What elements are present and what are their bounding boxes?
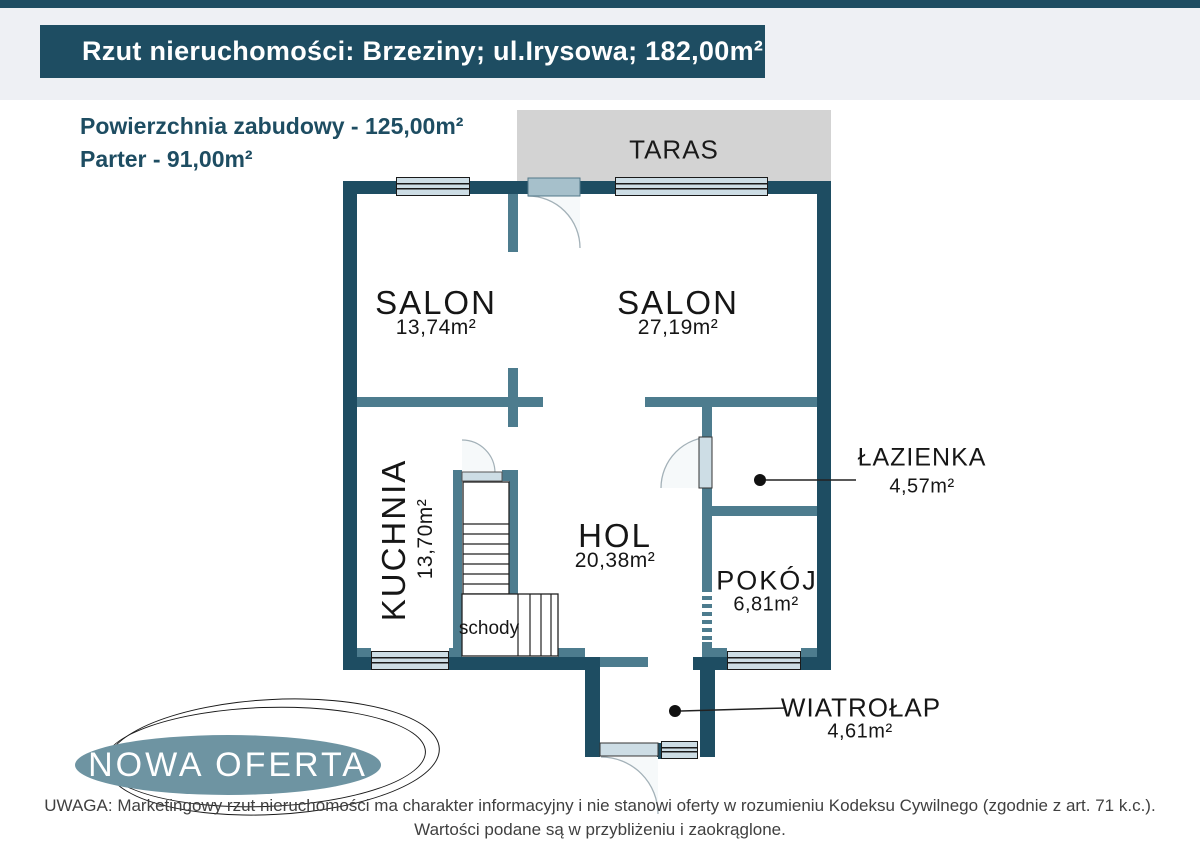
wall-pokoj-opening-dashed: [702, 588, 712, 642]
title-banner: Rzut nieruchomości: Brzeziny; ul.Irysowa…: [40, 25, 765, 78]
wall-lining-5: [801, 648, 817, 657]
floor-area-line: Parter - 91,00m²: [80, 143, 463, 176]
room-label-lazienka: ŁAZIENKA: [858, 444, 987, 473]
wall-vestibule-stub: [600, 657, 648, 667]
wall-vestibule-left: [585, 657, 600, 757]
wall-lining-3: [558, 648, 585, 657]
page-title: Rzut nieruchomości: Brzeziny; ul.Irysowa…: [82, 36, 763, 67]
terrace-label: TARAS: [629, 135, 719, 166]
room-label-wiatrolap: WIATROŁAP: [781, 693, 941, 724]
wall-bath-top: [645, 397, 817, 407]
wall-lining-2: [449, 648, 453, 657]
wall-left: [343, 181, 357, 670]
stairs-label: schody: [459, 618, 519, 640]
agency-logo-text: NOWA OFERTA: [88, 746, 368, 785]
floor-plan-page: Rzut nieruchomości: Brzeziny; ul.Irysowa…: [0, 0, 1200, 860]
disclaimer-line-1: UWAGA: Marketingowy rzut nieruchomości m…: [0, 794, 1200, 818]
wall-vestibule-right: [700, 657, 715, 757]
leader-vestibule: [669, 705, 786, 717]
top-accent-bar: [0, 0, 1200, 8]
room-area-salon1: 13,74m²: [396, 316, 477, 340]
leader-bathroom: [754, 474, 856, 486]
agency-logo: NOWA OFERTA: [75, 735, 381, 795]
window-pokoj: [727, 651, 801, 670]
disclaimer-line-2: Wartości podane są w przybliżeniu i zaok…: [0, 818, 1200, 842]
wall-cross-stub: [508, 368, 518, 427]
room-area-pokoj: 6,81m²: [733, 594, 798, 617]
legal-disclaimer: UWAGA: Marketingowy rzut nieruchomości m…: [0, 794, 1200, 842]
wall-bath-bottom: [712, 506, 817, 516]
wall-right: [817, 181, 831, 670]
window-top-left: [396, 177, 470, 196]
room-area-lazienka: 4,57m²: [889, 476, 954, 499]
room-area-wiatrolap: 4,61m²: [827, 721, 892, 744]
wall-salon-divider: [508, 194, 518, 252]
area-summary: Powierzchnia zabudowy - 125,00m² Parter …: [80, 110, 463, 176]
wall-bath-left-lower: [702, 488, 712, 588]
wall-stairs-cap: [502, 470, 518, 481]
room-area-hol: 20,38m²: [575, 549, 656, 573]
wall-bath-left-upper: [702, 407, 712, 437]
window-kitchen: [371, 651, 449, 670]
window-vestibule: [661, 741, 698, 759]
room-label-kuchnia: KUCHNIA: [375, 459, 413, 622]
wall-pokoj-left-bottom: [702, 642, 712, 657]
door-stairs-icon: [462, 440, 502, 481]
wall-lining-4: [712, 648, 727, 657]
room-label-pokoj: POKÓJ: [716, 566, 818, 597]
door-bathroom-icon: [661, 437, 712, 488]
wall-lining-1: [357, 648, 371, 657]
window-top-right: [615, 177, 768, 196]
built-area-line: Powierzchnia zabudowy - 125,00m²: [80, 110, 463, 143]
room-area-kuchnia: 13,70m²: [414, 499, 438, 580]
room-area-salon2: 27,19m²: [638, 316, 719, 340]
wall-stairs-right: [509, 470, 518, 595]
